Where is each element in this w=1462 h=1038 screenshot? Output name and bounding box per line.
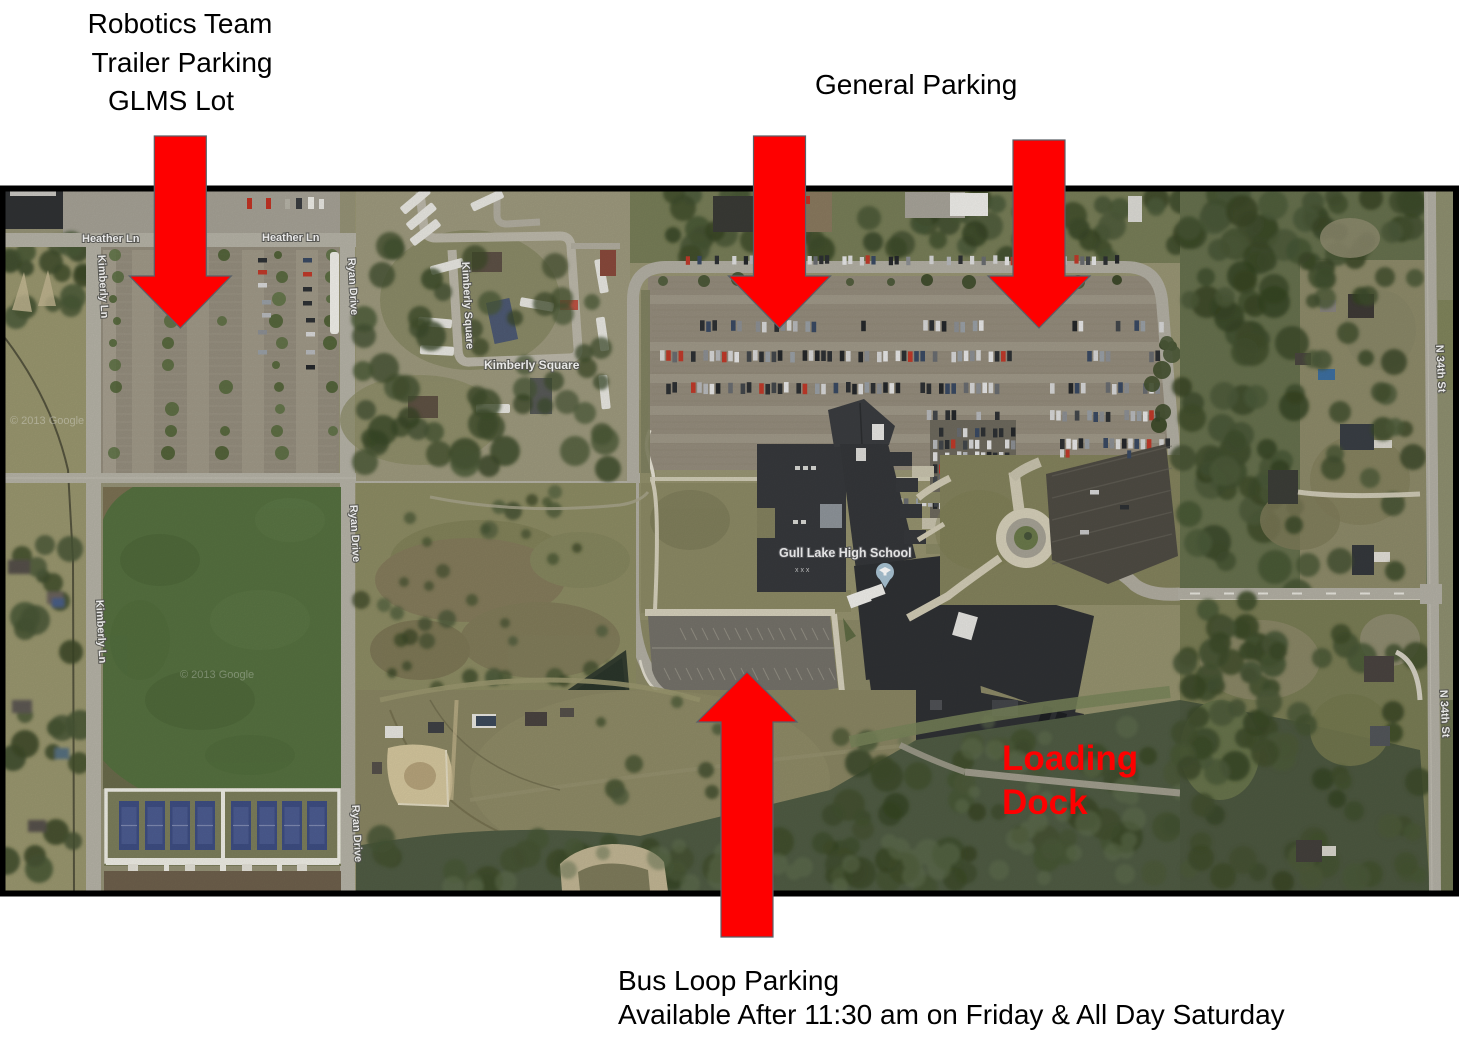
svg-text:General Parking: General Parking [815, 69, 1017, 100]
svg-text:Dock: Dock [1002, 783, 1088, 822]
svg-text:Trailer Parking: Trailer Parking [91, 47, 272, 78]
svg-text:Loading: Loading [1002, 739, 1138, 778]
svg-text:GLMS Lot: GLMS Lot [108, 85, 234, 116]
svg-text:Bus Loop Parking: Bus Loop Parking [618, 965, 839, 996]
svg-text:Available After 11:30 am on Fr: Available After 11:30 am on Friday & All… [618, 999, 1285, 1030]
svg-text:Robotics Team: Robotics Team [88, 8, 273, 39]
